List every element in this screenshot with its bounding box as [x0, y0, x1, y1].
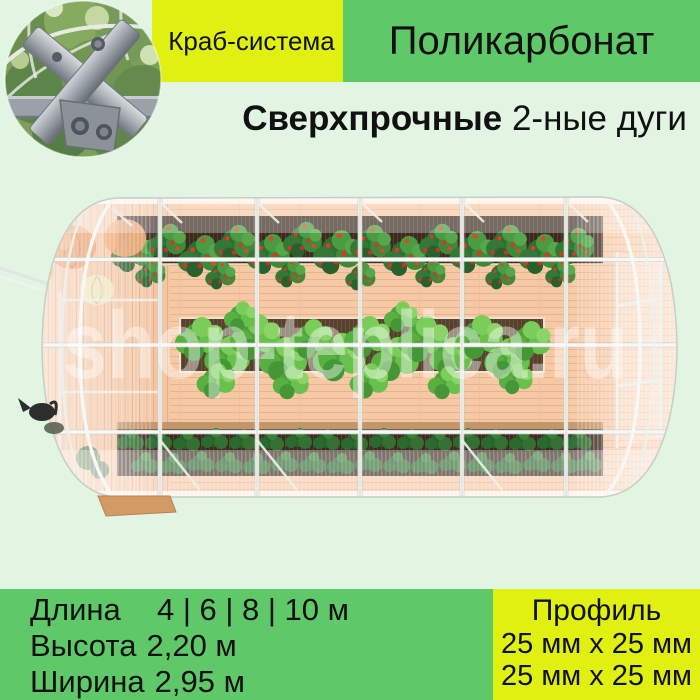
spec-row-height: Высота2,20 м: [30, 628, 493, 664]
headline-regular: 2-ные дуги: [512, 99, 687, 138]
crab-system-label: Краб-система: [168, 26, 335, 57]
profile-box: Профиль 25 мм х 25 мм 25 мм х 25 мм: [493, 589, 700, 700]
spec-row-width: Ширина2,95 м: [30, 664, 493, 700]
product-card: { "theme": { "background": "#e2f5e3", "a…: [0, 0, 700, 700]
spec-row-length: Длина4 | 6 | 8 | 10 м: [30, 592, 493, 628]
spec-value-width: 2,95 м: [155, 664, 245, 699]
headline-bold: Сверхпрочные: [242, 99, 502, 138]
spec-label-width: Ширина: [30, 664, 145, 700]
watermark-text: shop-teplica.ru: [63, 292, 628, 399]
profile-title: Профиль: [493, 594, 700, 628]
polycarbonate-badge: Поликарбонат: [343, 0, 700, 82]
spec-label-length: Длина: [30, 592, 157, 628]
spec-label-height: Высота: [30, 628, 136, 664]
crab-system-badge: Краб-система: [152, 0, 343, 82]
profile-line-1: 25 мм х 25 мм: [493, 628, 700, 660]
crab-joint-photo: [2, 0, 168, 166]
headline: Сверхпрочные 2-ные дуги: [242, 99, 687, 139]
specs-banner: Длина4 | 6 | 8 | 10 м Высота2,20 м Ширин…: [0, 589, 493, 700]
open-door-piece: [98, 496, 176, 516]
spec-value-length: 4 | 6 | 8 | 10 м: [157, 592, 349, 627]
polycarbonate-label: Поликарбонат: [389, 19, 655, 64]
profile-line-2: 25 мм х 25 мм: [493, 660, 700, 692]
spec-value-height: 2,20 м: [146, 628, 236, 663]
